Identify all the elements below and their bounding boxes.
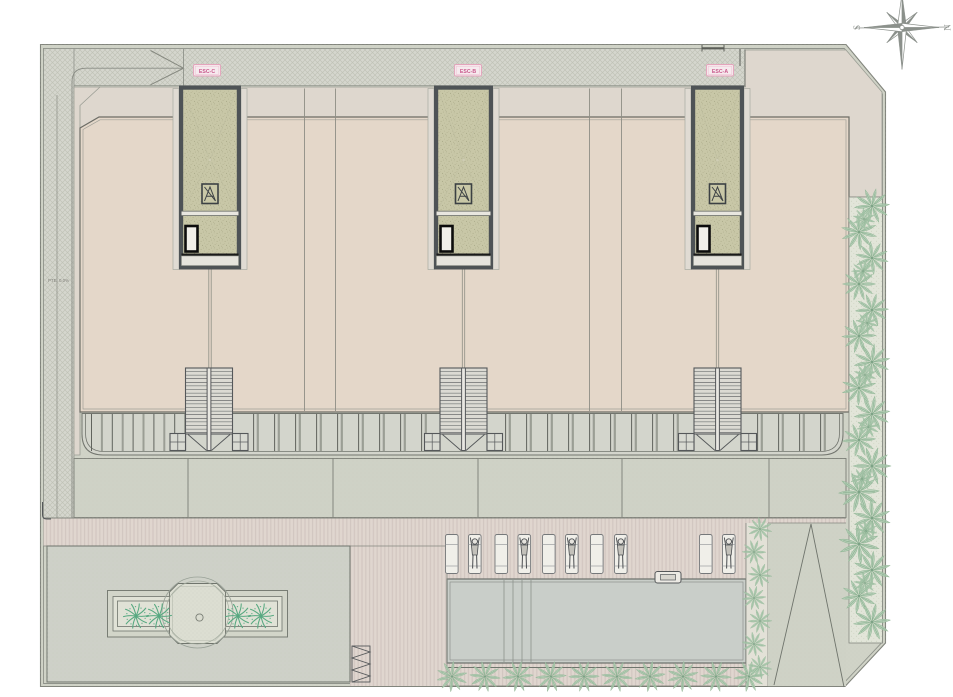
svg-text:ESC-A: ESC-A xyxy=(712,69,728,75)
svg-text:S: S xyxy=(852,25,862,30)
svg-text:N: N xyxy=(943,24,953,31)
svg-text:ESC-B: ESC-B xyxy=(460,69,476,75)
svg-text:ESC-C: ESC-C xyxy=(199,69,215,75)
svg-text:PTE. 0.0%: PTE. 0.0% xyxy=(48,278,69,283)
